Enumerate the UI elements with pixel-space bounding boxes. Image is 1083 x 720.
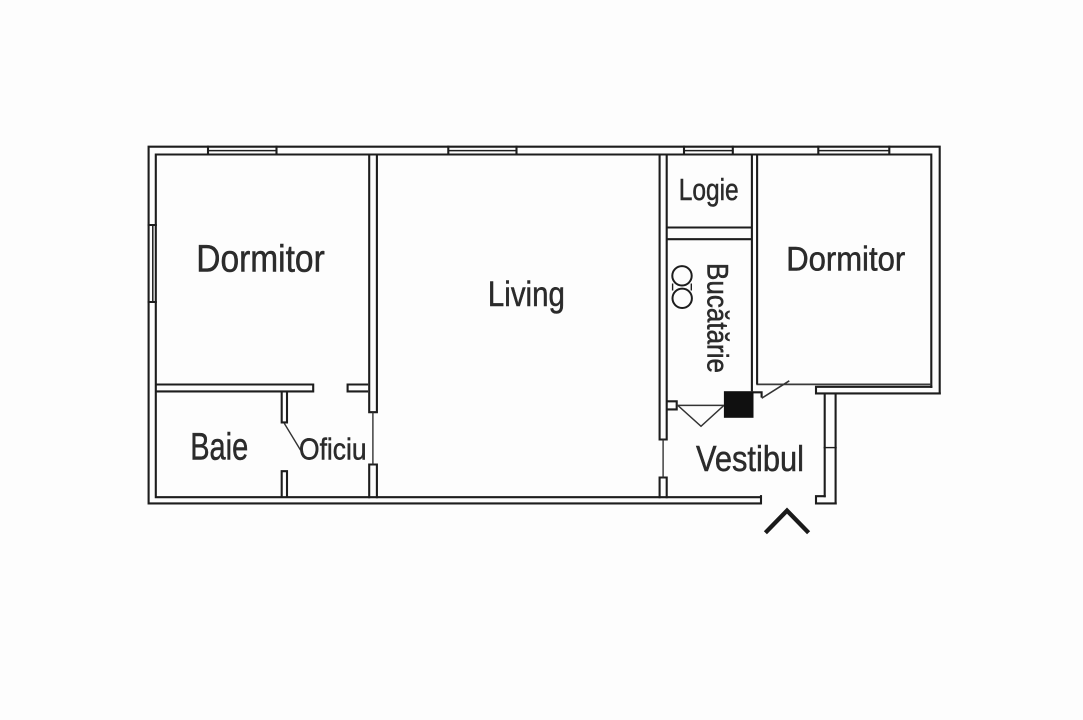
svg-text:Living: Living [488,274,565,314]
svg-text:Dormitor: Dormitor [786,241,905,279]
svg-text:Oficiu: Oficiu [299,433,367,467]
svg-text:Baie: Baie [190,427,248,469]
svg-text:Logie: Logie [679,173,739,207]
svg-text:Bucătărie: Bucătărie [701,263,734,373]
svg-text:Vestibul: Vestibul [696,438,804,479]
svg-text:Dormitor: Dormitor [196,238,325,280]
